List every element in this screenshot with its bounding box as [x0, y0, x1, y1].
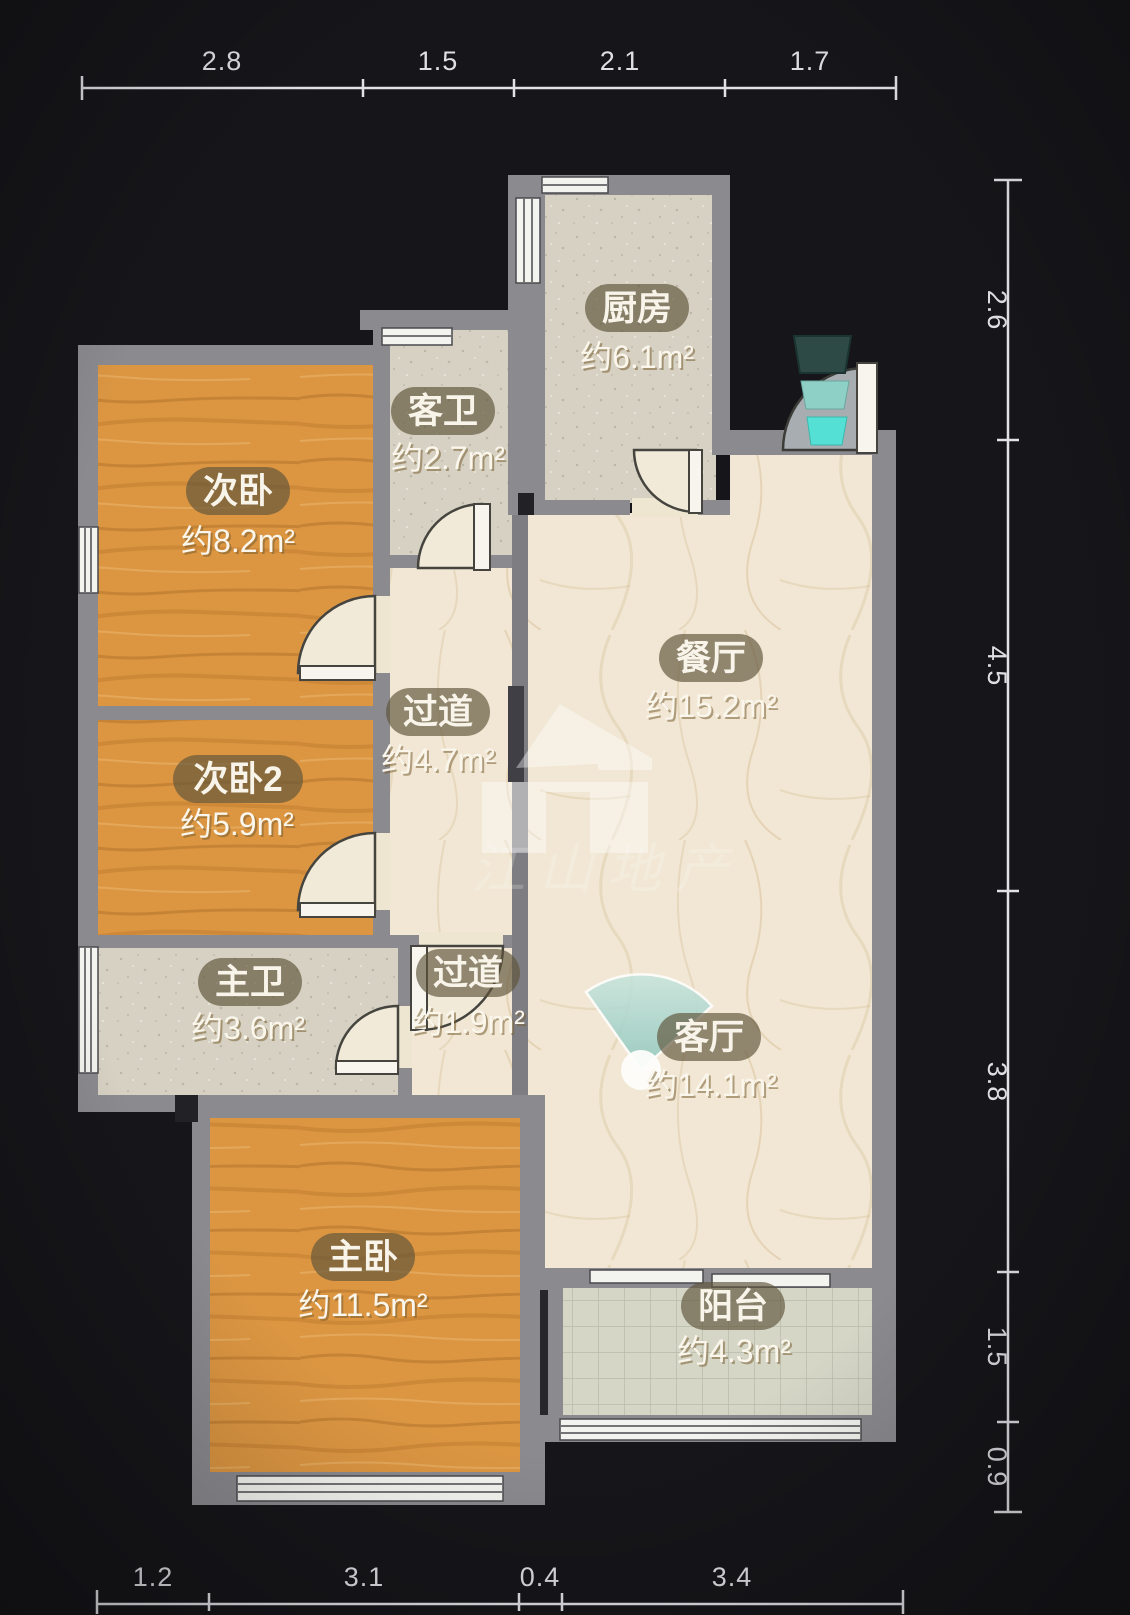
- svg-text:0.4: 0.4: [520, 1562, 561, 1592]
- svg-text:约11.5m²: 约11.5m²: [298, 1287, 428, 1323]
- svg-text:次卧2: 次卧2: [193, 760, 282, 799]
- svg-text:2.1: 2.1: [600, 46, 641, 76]
- master-bath-window: [79, 947, 98, 1073]
- svg-text:3.4: 3.4: [712, 1562, 753, 1592]
- svg-text:主卫: 主卫: [215, 963, 285, 1002]
- floorplan-canvas: 江山地产 次卧 约8.2m² 约8.2m² 客卫 约2.7m² 约2.7m² 厨…: [0, 0, 1130, 1615]
- balcony-window: [560, 1419, 861, 1440]
- svg-text:客厅: 客厅: [674, 1017, 744, 1057]
- svg-text:主卧: 主卧: [328, 1238, 398, 1277]
- svg-text:2.8: 2.8: [202, 46, 243, 76]
- svg-text:4.5: 4.5: [982, 646, 1012, 687]
- svg-text:约1.9m²: 约1.9m²: [411, 1004, 525, 1040]
- svg-text:1.2: 1.2: [133, 1562, 174, 1592]
- svg-text:1.5: 1.5: [418, 46, 459, 76]
- svg-text:阳台: 阳台: [698, 1287, 768, 1326]
- svg-text:1.7: 1.7: [790, 46, 831, 76]
- svg-text:客卫: 客卫: [408, 391, 478, 431]
- svg-text:过道: 过道: [433, 954, 503, 993]
- svg-text:约4.3m²: 约4.3m²: [677, 1333, 791, 1369]
- master-bedroom-window: [237, 1476, 503, 1501]
- room-label-ciwo2: 次卧2 约5.9m² 约5.9m²: [173, 755, 303, 844]
- svg-text:1.5: 1.5: [982, 1327, 1012, 1368]
- svg-text:约6.1m²: 约6.1m²: [580, 339, 694, 375]
- svg-text:3.8: 3.8: [982, 1062, 1012, 1103]
- svg-text:2.6: 2.6: [982, 290, 1012, 331]
- svg-text:约15.2m²: 约15.2m²: [645, 688, 777, 724]
- bedroom2-window: [79, 527, 98, 593]
- svg-text:厨房: 厨房: [602, 289, 672, 328]
- watermark-text: 江山地产: [471, 840, 743, 900]
- svg-text:约14.1m²: 约14.1m²: [645, 1067, 777, 1103]
- svg-text:约8.2m²: 约8.2m²: [181, 523, 295, 559]
- svg-text:过道: 过道: [403, 693, 473, 732]
- svg-text:约4.7m²: 约4.7m²: [381, 742, 495, 778]
- svg-text:约5.9m²: 约5.9m²: [180, 806, 294, 842]
- svg-text:餐厅: 餐厅: [676, 639, 746, 678]
- floorplan-svg: 江山地产 次卧 约8.2m² 约8.2m² 客卫 约2.7m² 约2.7m² 厨…: [0, 0, 1130, 1615]
- svg-text:次卧: 次卧: [203, 472, 273, 511]
- guest-bath-window: [382, 328, 452, 345]
- svg-text:3.1: 3.1: [344, 1562, 385, 1592]
- kitchen-side-window: [516, 198, 540, 283]
- kitchen-top-window: [542, 177, 608, 193]
- svg-text:约3.6m²: 约3.6m²: [191, 1010, 305, 1046]
- svg-text:约2.7m²: 约2.7m²: [391, 440, 505, 476]
- svg-text:0.9: 0.9: [982, 1447, 1012, 1488]
